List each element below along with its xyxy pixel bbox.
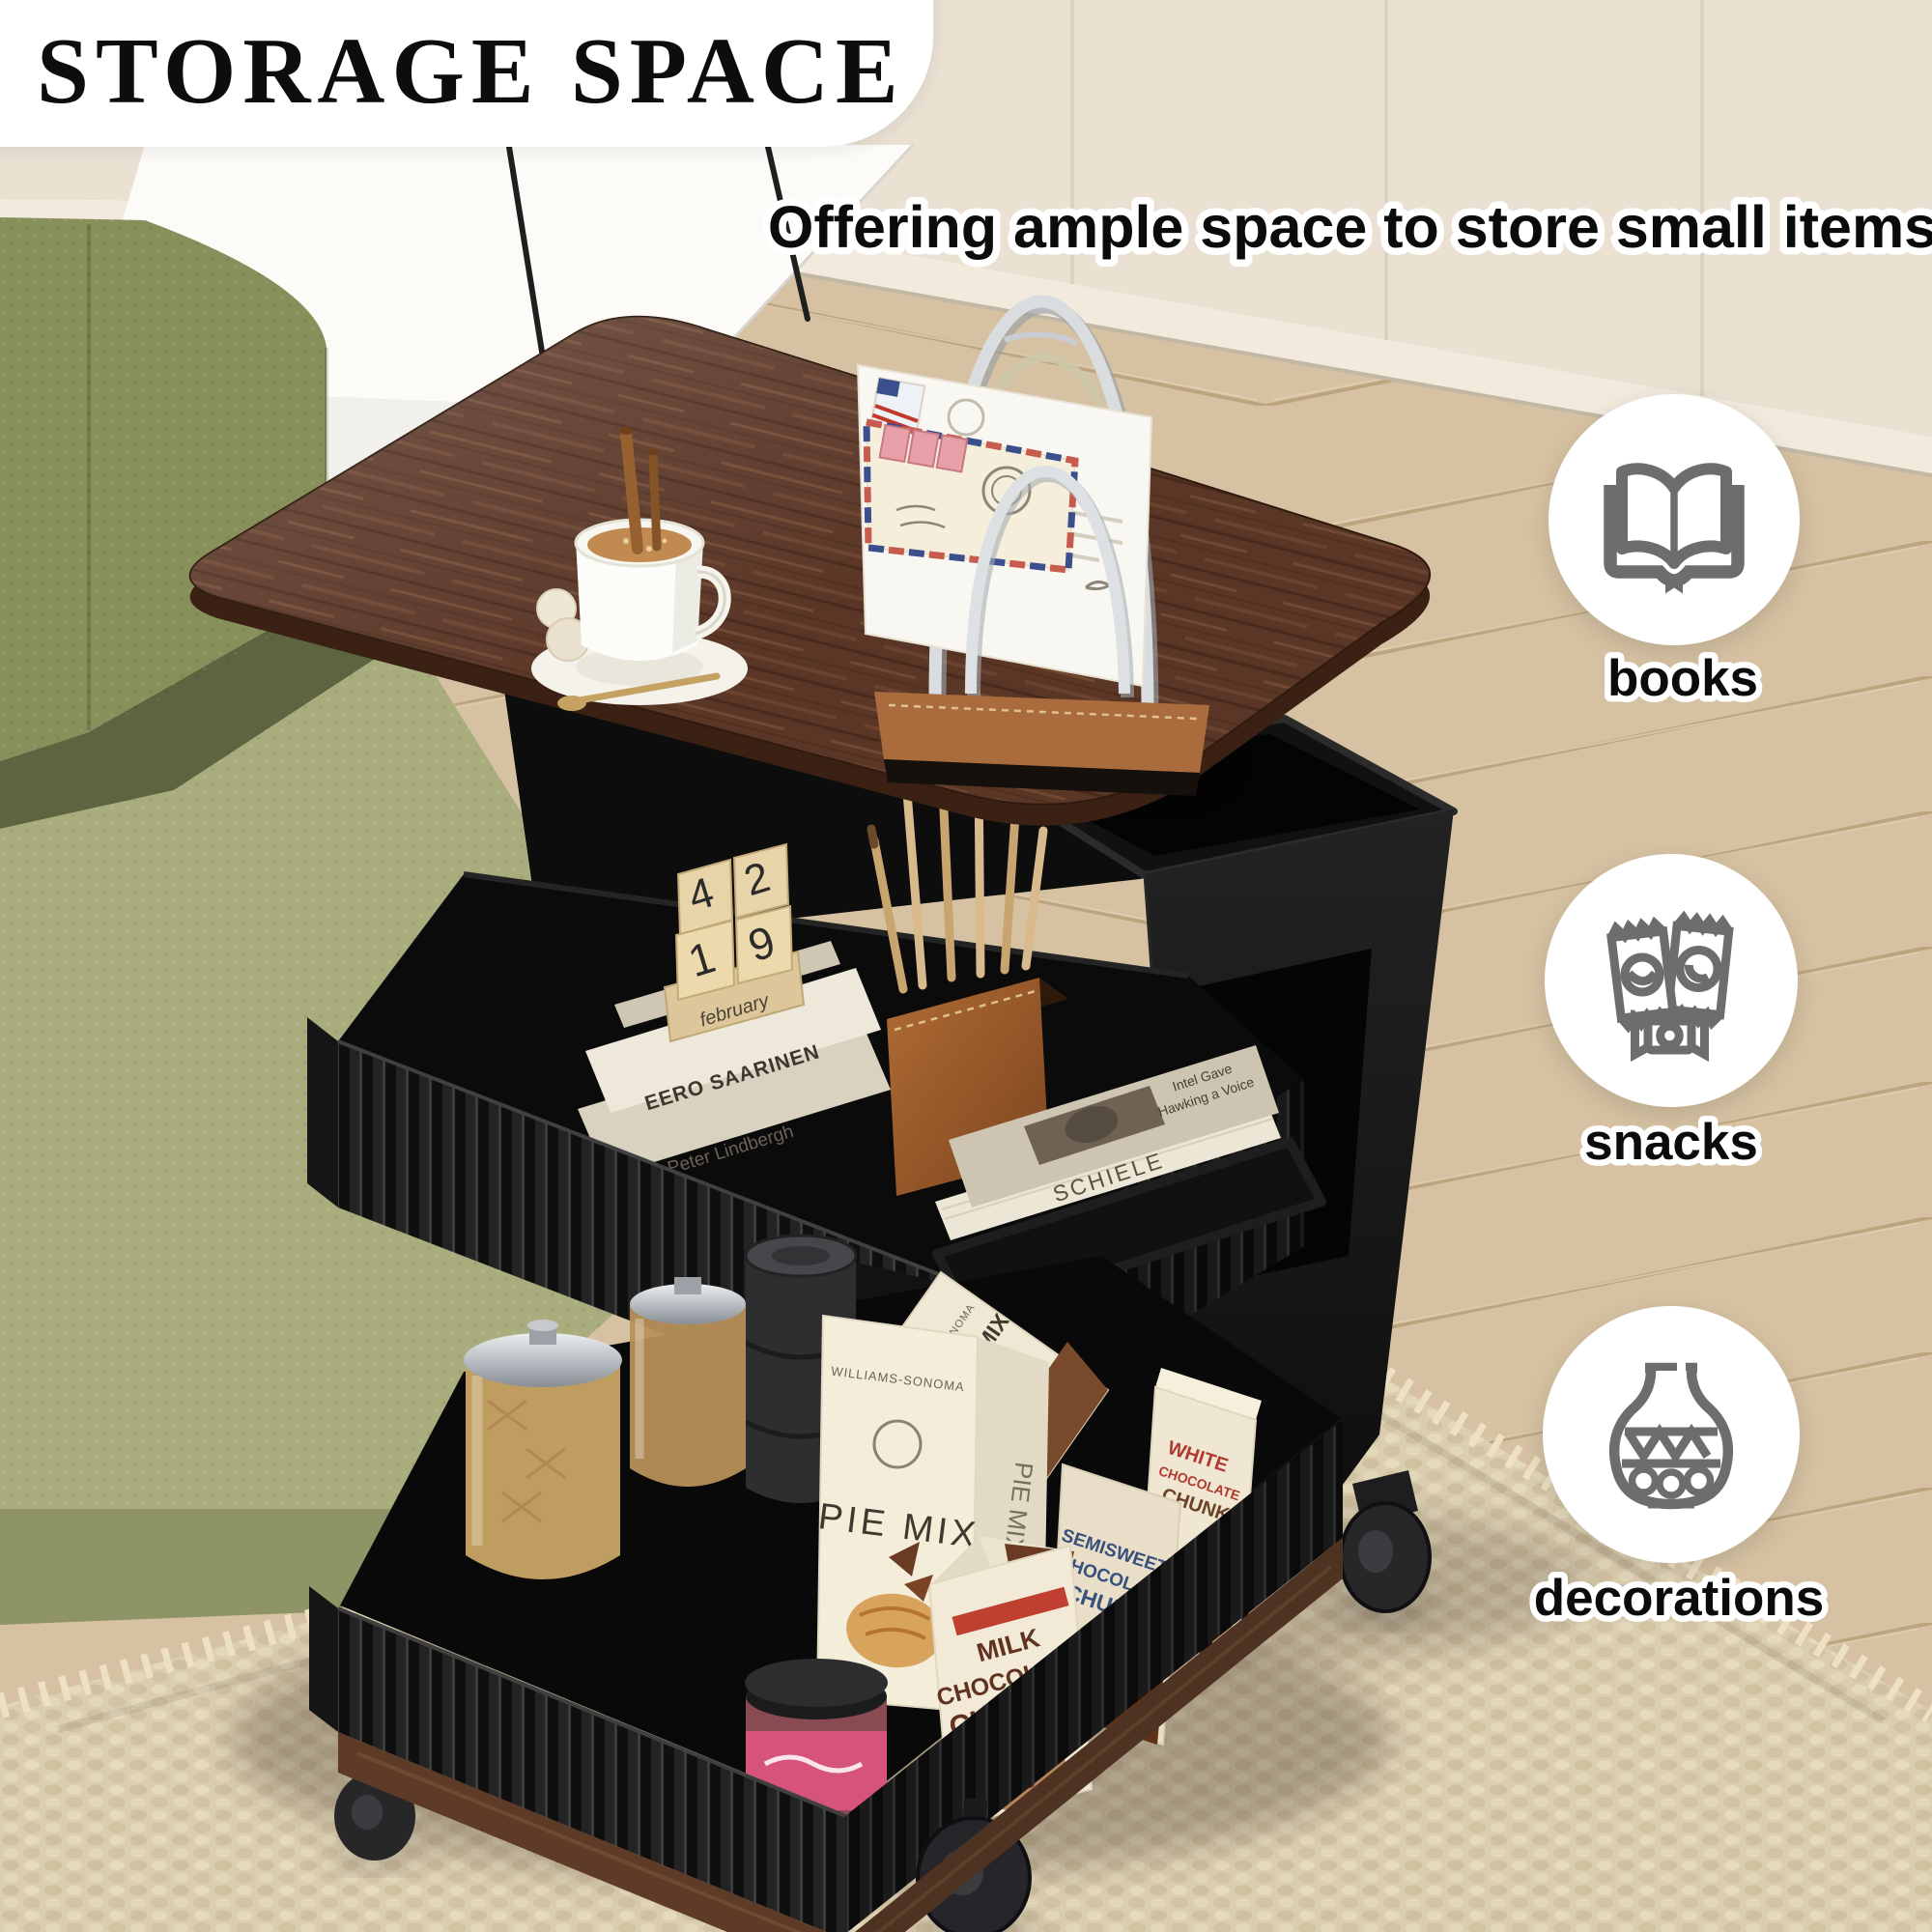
feature-decorations <box>1543 1306 1800 1563</box>
product-banner: EERO SAARINEN Peter Lindbergh 4 2 1 9 fe… <box>0 0 1932 1932</box>
feature-books <box>1548 394 1800 645</box>
banner-subtitle-text: Offering ample space to store small item… <box>768 194 1932 260</box>
open-book-icon <box>1587 433 1761 607</box>
letter-holder-base <box>874 692 1209 773</box>
banner-title: STORAGE SPACE <box>37 17 905 125</box>
feature-snacks <box>1545 854 1798 1107</box>
feature-snacks-label-text: snacks <box>1584 1114 1758 1171</box>
vase-icon <box>1584 1348 1758 1521</box>
feature-books-label-text: books <box>1607 650 1758 707</box>
feature-snacks-label: snacks <box>1449 1101 1893 1184</box>
feature-decorations-label-text: decorations <box>1534 1570 1824 1627</box>
snack-packets-icon <box>1584 894 1758 1067</box>
title-band: STORAGE SPACE <box>0 0 933 147</box>
feature-books-label: books <box>1461 638 1905 721</box>
feature-decorations-label: decorations <box>1457 1557 1901 1640</box>
banner-subtitle: Offering ample space to store small item… <box>753 162 1932 288</box>
